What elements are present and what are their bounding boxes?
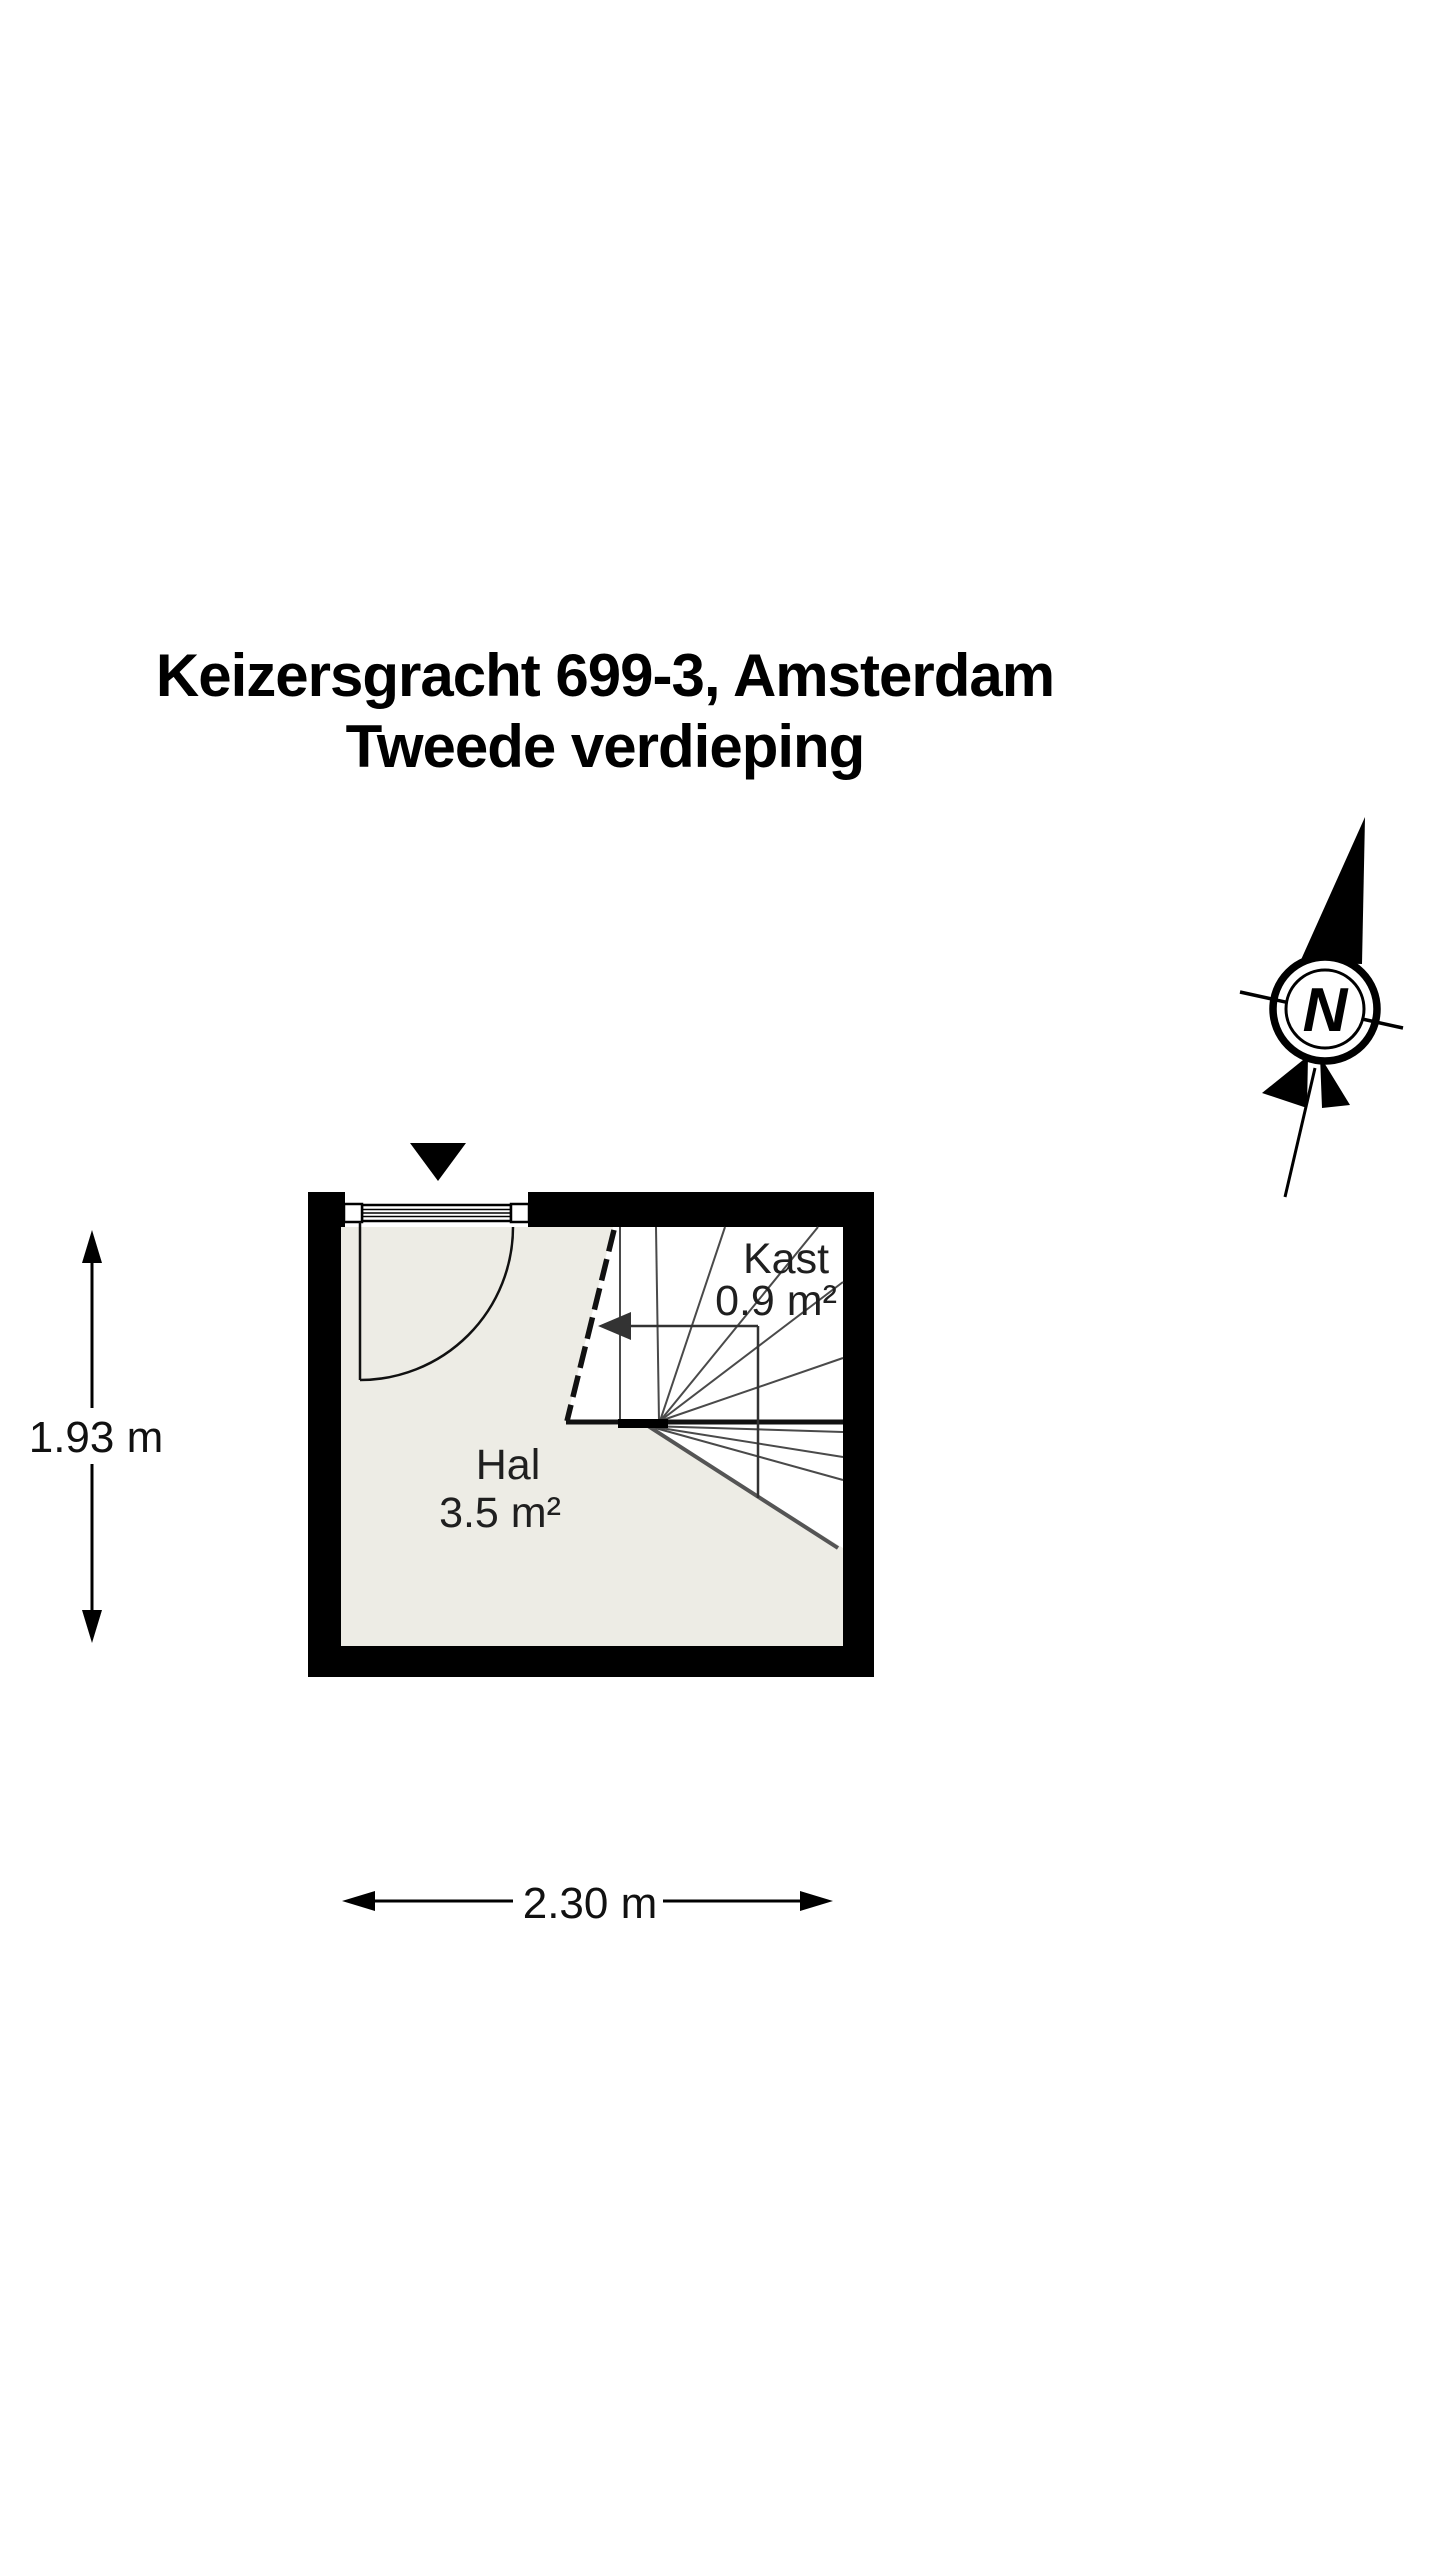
compass-tail-left-icon xyxy=(1262,1056,1308,1108)
floorplan-drawing: N xyxy=(0,0,1440,2560)
width-dimension-label: 2.30 m xyxy=(523,1879,658,1928)
dim-arrow-down-icon xyxy=(82,1610,102,1643)
dim-arrow-right-icon xyxy=(800,1891,833,1911)
floorplan-page: Keizersgracht 699-3, Amsterdam Tweede ve… xyxy=(0,0,1440,2560)
height-dimension-label: 1.93 m xyxy=(29,1413,164,1462)
door-jamb-right xyxy=(511,1204,529,1222)
floorplan-body: Hal 3.5 m² Kast 0.9 m² xyxy=(308,1143,874,1677)
entrance-arrow-icon xyxy=(410,1143,466,1181)
hal-name-label: Hal xyxy=(476,1441,541,1489)
dim-arrow-left-icon xyxy=(342,1891,375,1911)
wall-top-right xyxy=(528,1192,874,1227)
kast-name-label: Kast xyxy=(743,1235,829,1283)
hal-area-label: 3.5 m² xyxy=(439,1489,561,1537)
compass-north-label: N xyxy=(1303,976,1349,1045)
north-compass-icon: N xyxy=(1240,817,1403,1197)
dim-arrow-up-icon xyxy=(82,1230,102,1263)
wall-right xyxy=(843,1192,874,1677)
wall-left xyxy=(308,1192,341,1677)
compass-needle-icon xyxy=(1300,817,1365,964)
kast-area-label: 0.9 m² xyxy=(715,1277,837,1325)
door-jamb-left xyxy=(344,1204,362,1222)
wall-top-left-stub xyxy=(308,1192,345,1227)
stair-nose xyxy=(618,1419,668,1428)
dimension-vertical: 1.93 m xyxy=(29,1230,164,1643)
dimension-horizontal: 2.30 m xyxy=(342,1879,833,1928)
wall-bottom xyxy=(308,1646,874,1677)
